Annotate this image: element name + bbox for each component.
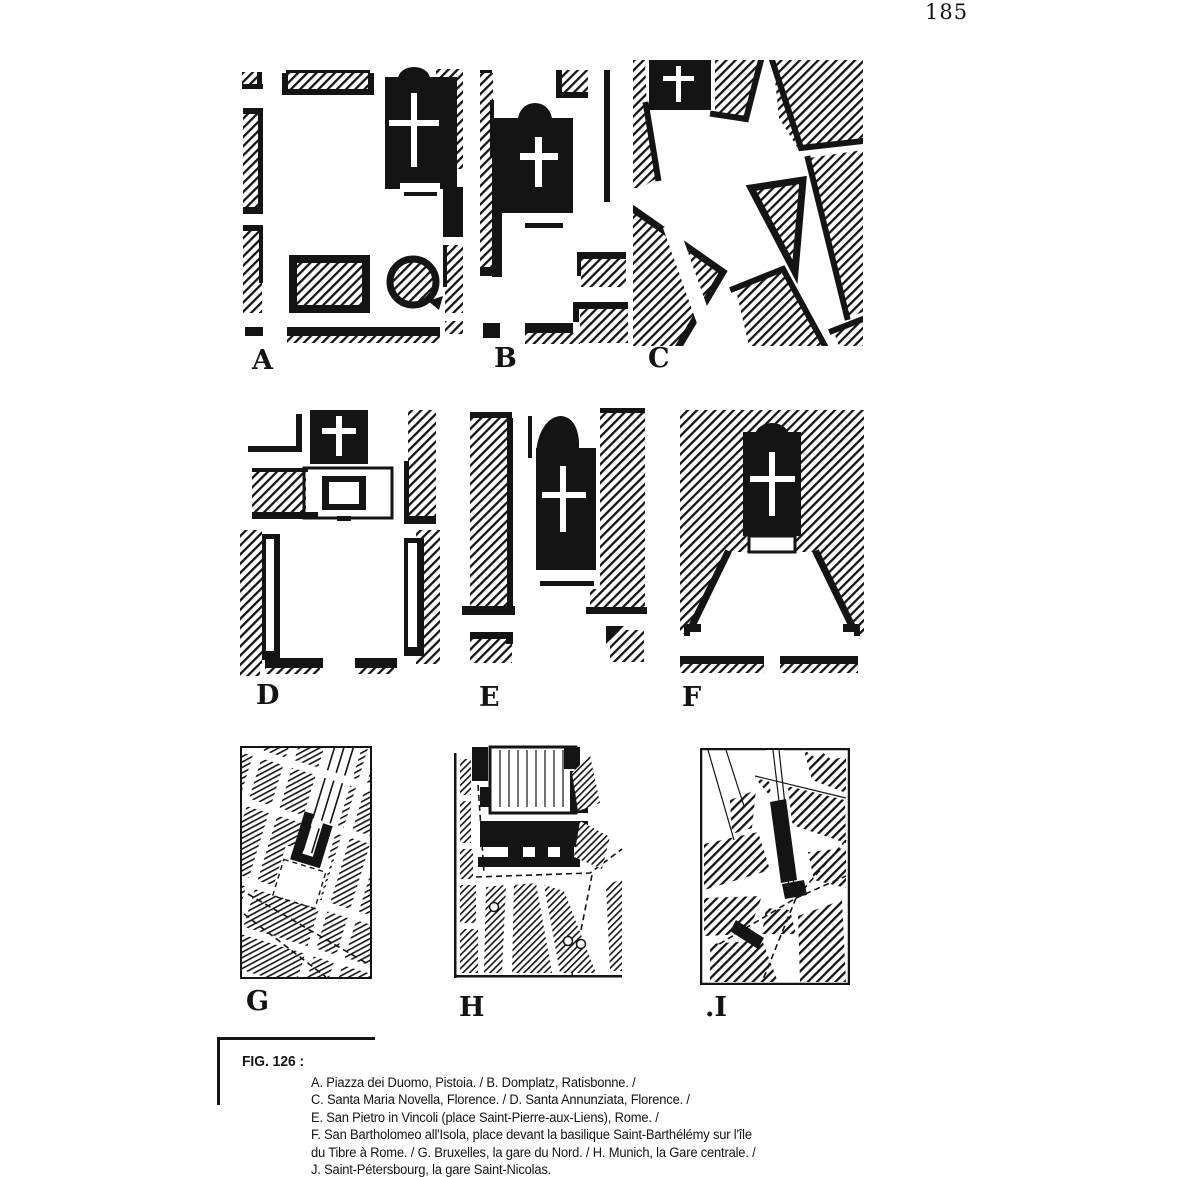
caption-line: du Tibre à Rome. / G. Bruxelles, la gare… [311,1144,756,1161]
baptistery-square [293,259,366,309]
plan-panel-i [700,748,850,985]
bottom-street-edge [240,658,397,676]
plan-panel-h [452,745,627,982]
plan-panel-d [240,406,440,676]
map-drawing-f [672,406,872,678]
plan-panel-a [240,65,465,343]
caption-line: E. San Pietro in Vincoli (place Saint-Pi… [311,1109,756,1126]
figure-caption: A. Piazza dei Duomo, Pistoia. / B. Dompl… [311,1074,756,1177]
church-plan [310,410,368,464]
panel-label-a: A [252,347,273,374]
map-drawing-g [240,746,372,979]
plan-panel-e [462,408,647,674]
bottom-street-edge [680,656,858,673]
panel-label-d: D [256,682,279,709]
colonnades [240,530,440,664]
plan-panel-g [240,746,372,979]
caption-line: J. Saint-Pétersbourg, la gare Saint-Nico… [311,1161,756,1177]
church-plan [743,423,801,552]
street-grid [240,746,372,979]
panel-label-f: F [682,684,701,711]
panel-label-b: B [494,345,517,372]
panel-label-i: .I [705,994,727,1021]
caption-line: A. Piazza dei Duomo, Pistoia. / B. Dompl… [311,1074,756,1091]
caption-line: F. San Bartholomeo all'Isola, place deva… [311,1126,756,1143]
book-page: 185 [0,0,1177,1177]
plan-panel-c [633,60,863,346]
map-drawing-b [478,58,630,346]
plan-panel-f [672,406,872,678]
figure-number: FIG. 126 : [242,1053,304,1070]
panel-label-g: G [246,988,269,1015]
panel-label-h: H [459,994,485,1021]
caption-line: C. Santa Maria Novella, Florence. / D. S… [311,1091,756,1108]
map-drawing-i [700,748,850,985]
bottom-street-edge [245,321,463,343]
page-number: 185 [925,0,968,24]
church-plan [385,67,457,196]
panel-label-c: C [648,345,670,372]
bottom-blocks [470,626,644,663]
baptistery-circle [390,259,443,310]
caption-rule-vertical [217,1037,220,1105]
train-shed [472,747,588,813]
map-drawing-a [240,65,465,343]
panel-label-e: E [479,684,500,711]
church-plan [536,416,596,586]
map-drawing-d [240,406,440,676]
caption-rule-horizontal [217,1037,375,1040]
church-plan [649,60,711,110]
map-drawing-c [633,60,863,346]
plan-panel-b [478,58,630,346]
station-building [478,821,588,867]
map-drawing-e [462,408,647,674]
church-plan [492,103,573,277]
map-drawing-h [452,745,627,982]
